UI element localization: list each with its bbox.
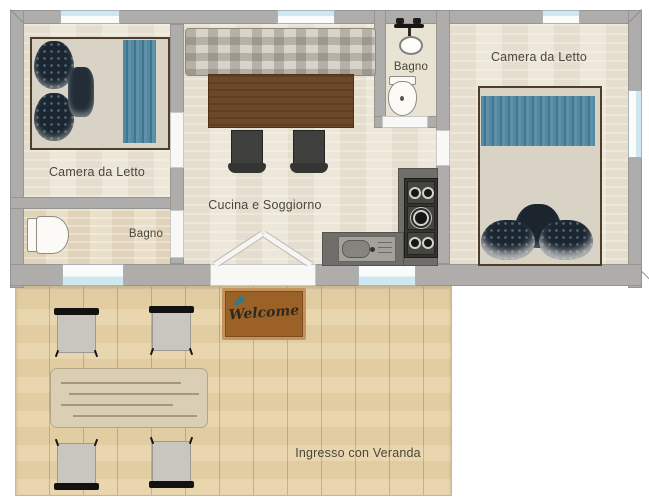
window-top-bedroom-left xyxy=(60,10,120,24)
window-top-bedroom-right xyxy=(542,10,580,24)
bird-icon xyxy=(231,293,247,307)
wall-left xyxy=(10,10,24,288)
stove-burner-module xyxy=(407,232,435,255)
bathroom-top-label: Bagno xyxy=(384,61,438,73)
window-top-kitchen xyxy=(277,10,335,24)
faucet-icon xyxy=(370,247,375,252)
burner-icon xyxy=(409,187,421,199)
door-bedroom-right xyxy=(436,130,450,166)
stove-icon xyxy=(404,178,438,258)
pillow-icon xyxy=(539,220,593,260)
door-bedroom-left xyxy=(170,112,184,168)
burner-icon xyxy=(422,187,434,199)
bed-runner xyxy=(123,40,156,143)
table-groove xyxy=(73,415,197,417)
veranda-chair-icon xyxy=(152,309,191,351)
pillow-icon xyxy=(481,220,535,260)
table-groove xyxy=(61,404,173,406)
toilet-bowl xyxy=(36,216,69,254)
chair-icon xyxy=(231,130,263,168)
french-door-swing-icon xyxy=(206,230,320,266)
veranda-chair-icon xyxy=(152,441,191,485)
living-table-icon xyxy=(208,74,354,128)
chair-back-bar xyxy=(149,481,194,488)
table-groove xyxy=(61,382,181,384)
toilet-left-icon xyxy=(27,216,67,252)
french-door-veranda xyxy=(210,264,316,286)
mixer-knob xyxy=(396,18,404,24)
floor-plan: Camera da Letto Bagno Cucina e Soggiorno… xyxy=(0,0,649,500)
kitchen-living-label: Cucina e Soggiorno xyxy=(195,198,335,212)
sink-basin xyxy=(342,240,370,258)
burner-icon xyxy=(409,237,421,249)
cushion-icon xyxy=(68,67,94,117)
chair-back-bar xyxy=(54,483,99,490)
welcome-mat: Welcome xyxy=(222,288,306,340)
veranda-table-icon xyxy=(50,368,208,428)
sink-drainer xyxy=(378,242,392,256)
wall-bed1-bath-divider xyxy=(10,197,184,209)
bed-runner xyxy=(481,96,595,146)
mixer-knob xyxy=(413,18,421,24)
veranda-chair-icon xyxy=(57,443,96,487)
chair-icon xyxy=(293,130,325,168)
toilet-drain xyxy=(400,96,404,101)
window-bottom-bathroom-left xyxy=(62,264,124,286)
shower-head-icon xyxy=(399,36,423,55)
bed-left-icon xyxy=(30,37,170,150)
stove-burner-module xyxy=(407,181,435,204)
chair-back-bar xyxy=(54,308,99,315)
burner-icon xyxy=(413,210,429,226)
sofa-icon xyxy=(185,28,376,76)
veranda-chair-icon xyxy=(57,311,96,353)
bathroom-left-label: Bagno xyxy=(116,228,176,240)
chair-back-bar xyxy=(149,306,194,313)
mixer-stem xyxy=(408,28,411,36)
stove-burner-module xyxy=(407,206,435,229)
window-bottom-kitchen xyxy=(358,264,416,286)
shower-mixer-icon xyxy=(392,18,428,36)
toilet-top-icon xyxy=(388,76,415,114)
bed-right-icon xyxy=(478,86,602,266)
door-bathroom-top xyxy=(382,116,428,128)
bedroom-right-label: Camera da Letto xyxy=(450,50,628,64)
sink-icon xyxy=(338,236,396,262)
window-right-bedroom-right xyxy=(628,90,642,158)
bedroom-left-label: Camera da Letto xyxy=(27,165,167,179)
burner-icon xyxy=(422,237,434,249)
veranda-label: Ingresso con Veranda xyxy=(278,446,438,460)
corner-miter-bottom-right xyxy=(641,271,649,286)
table-groove xyxy=(69,393,199,395)
